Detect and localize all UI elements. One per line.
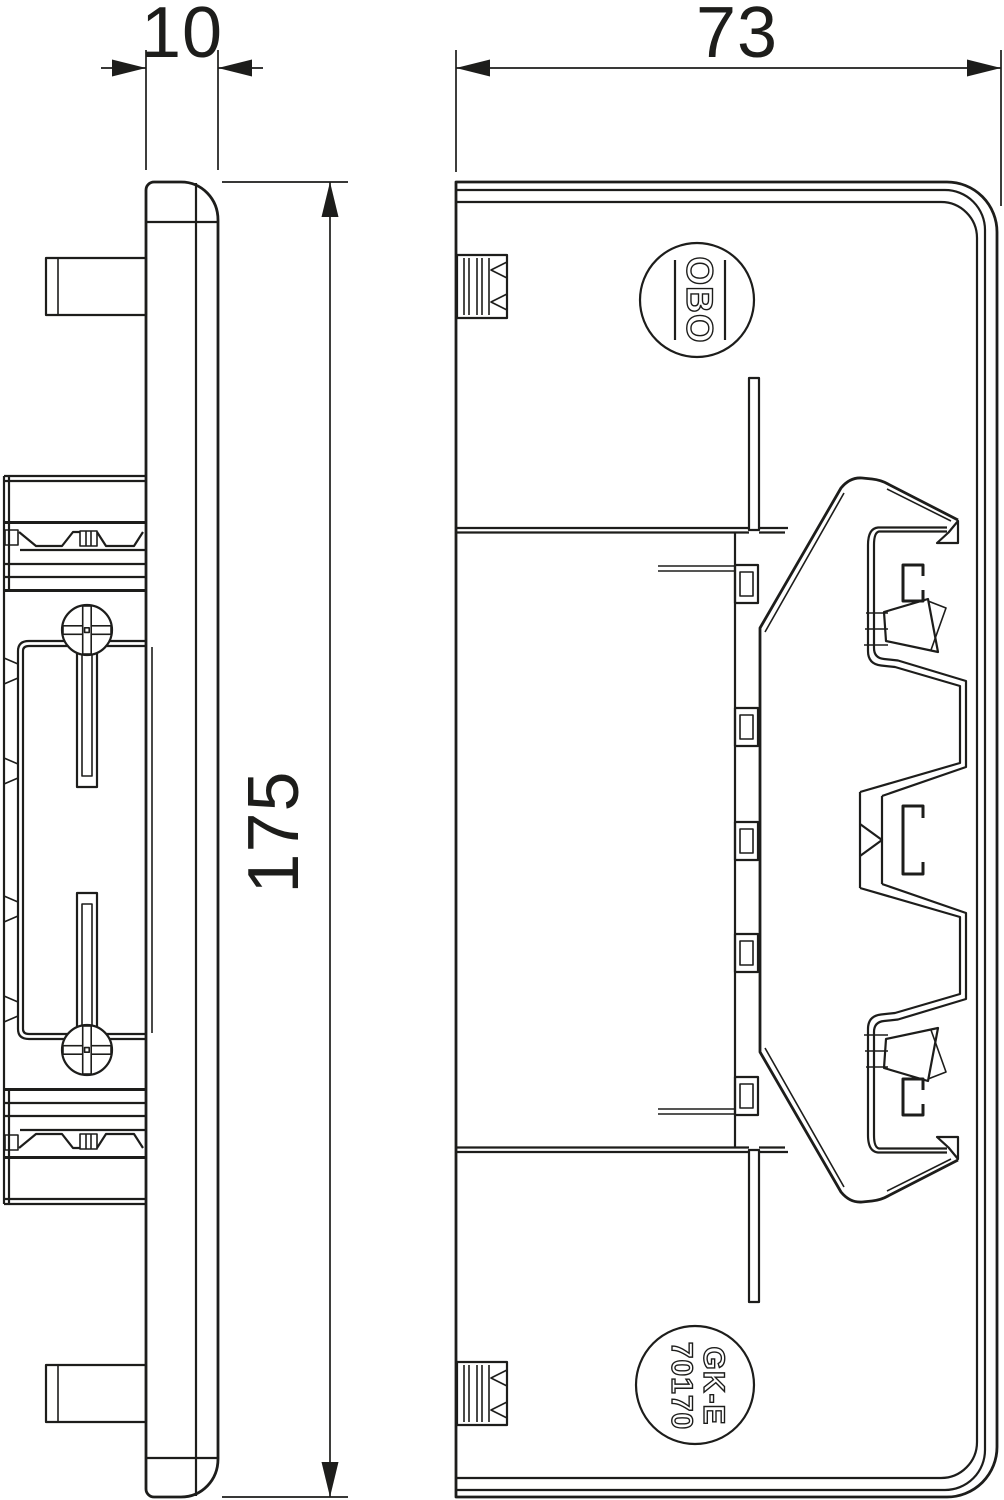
- retention-clip-teeth: [491, 262, 507, 310]
- snap-tooth-profile: [19, 532, 143, 546]
- retention-clip: [457, 255, 507, 318]
- obo-logo-stamp: OBO: [640, 243, 754, 357]
- center-tooth: [860, 824, 882, 856]
- rail-block-top-edge: [4, 476, 146, 481]
- arrowhead-left: [456, 60, 490, 77]
- wall-notch-1: [4, 658, 18, 684]
- partition-edge: [456, 528, 788, 533]
- bracket-box-left: [18, 651, 23, 840]
- carrier-shoulder: [658, 566, 735, 571]
- center-rails: [860, 792, 882, 888]
- carrier-tab-outer: [735, 565, 758, 603]
- dimension-height: 175: [222, 182, 348, 1497]
- technical-drawing-page: OBO GK-E 70170 10 73 175: [0, 0, 1004, 1500]
- front-frame-mid: [456, 190, 985, 1490]
- dimension-width-value: 73: [696, 0, 778, 73]
- carrier-tab-inner: [740, 715, 753, 739]
- side-view-upper-details: [4, 258, 152, 840]
- dimension-width: 73: [456, 0, 1001, 206]
- carrier-tab-inner: [740, 829, 753, 853]
- dimension-height-value: 175: [234, 770, 314, 893]
- snap-tooth-left: [5, 530, 18, 545]
- dimension-depth: 10: [101, 0, 263, 170]
- wall-notch-2: [4, 758, 18, 784]
- carrier-tab-inner: [740, 572, 753, 596]
- front-frame-outer: [456, 182, 997, 1497]
- snap-tooth-center-detail: [86, 531, 91, 546]
- front-view: OBO GK-E 70170: [456, 182, 997, 1497]
- end-plate-outline: [146, 182, 218, 1497]
- technical-drawing-canvas: OBO GK-E 70170 10 73 175: [0, 0, 1004, 1500]
- latch-outline-inner: [765, 489, 951, 632]
- carrier-tab: [735, 708, 758, 746]
- obo-logo-text: OBO: [679, 256, 720, 343]
- fixing-slot-outer: [77, 648, 97, 787]
- retention-clip-ribs: [464, 258, 489, 315]
- side-view-lower-details-mirror: [4, 840, 152, 1422]
- latch-channel-inner: [874, 545, 966, 796]
- carrier-tab-outer: [735, 822, 758, 860]
- mounting-lug: [46, 258, 146, 315]
- c-cutout: [903, 565, 923, 601]
- carrier-tab: [735, 565, 758, 603]
- snap-tooth-center: [80, 531, 97, 546]
- carrier-tab-outer: [735, 708, 758, 746]
- screw-head: [62, 605, 112, 655]
- rail-block-lines: [4, 550, 146, 577]
- side-view: [4, 182, 218, 1497]
- arrowhead-right: [967, 60, 1001, 77]
- arrowhead-left: [218, 60, 252, 77]
- front-view-lower-details-mirror: [456, 840, 966, 1425]
- part-number-stamp: GK-E 70170: [636, 1326, 754, 1444]
- c-cutout-center: [903, 806, 923, 874]
- dimension-depth-value: 10: [141, 0, 223, 73]
- front-view-center-details: [735, 792, 923, 888]
- funnel-detail: [884, 599, 938, 652]
- part-series-text: GK-E: [697, 1347, 730, 1426]
- latch-hook-edge: [868, 528, 947, 546]
- part-number-text: 70170: [665, 1342, 698, 1430]
- front-frame-inner: [456, 202, 977, 1478]
- arrowhead-up: [322, 182, 339, 217]
- fixing-slot-inner: [82, 654, 92, 776]
- arrowhead-down: [322, 1462, 339, 1497]
- center-rib: [749, 378, 759, 530]
